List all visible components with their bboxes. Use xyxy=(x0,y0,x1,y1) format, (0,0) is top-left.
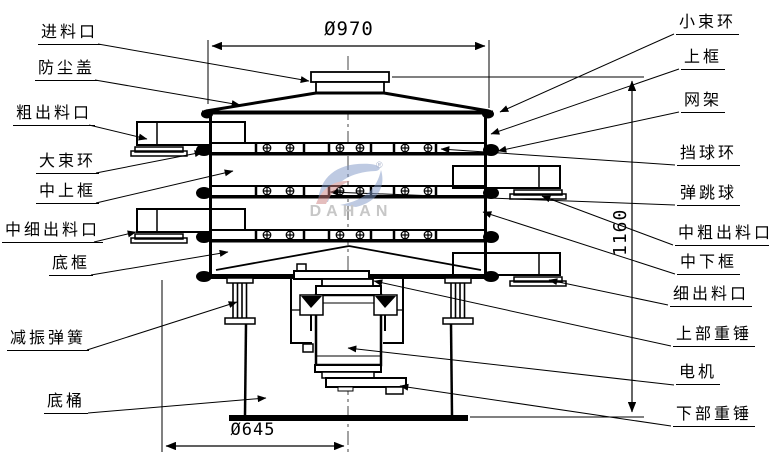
label-middle-lower-frame: 中下框 xyxy=(677,253,740,275)
label-bottom-barrel: 底桶 xyxy=(44,392,88,414)
small-clamp-ring-left xyxy=(201,110,213,119)
damping-spring-left xyxy=(225,278,255,324)
label-upper-frame: 上框 xyxy=(681,48,725,70)
sieve-machine-drawing xyxy=(0,0,769,454)
label-motor: 电机 xyxy=(676,363,720,385)
sieve-deck-3 xyxy=(211,230,485,241)
dimension-top-diameter: Ø970 xyxy=(318,18,380,40)
label-large-clamp-ring: 大束环 xyxy=(36,152,99,174)
technical-drawing-page: ® DAHAN Ø970 1160 Ø645 进料口 防尘盖 粗出料口 大束环 … xyxy=(0,0,769,454)
damping-spring-right xyxy=(443,278,473,324)
sieve-deck-1 xyxy=(211,143,485,154)
label-fine-outlet: 细出料口 xyxy=(670,285,752,307)
label-coarse-outlet: 粗出料口 xyxy=(13,104,95,126)
label-bouncing-ball: 弹跳球 xyxy=(677,184,740,206)
label-middle-upper-frame: 中上框 xyxy=(36,182,99,204)
label-upper-weight: 上部重锤 xyxy=(673,325,755,347)
motor-assembly xyxy=(291,264,406,394)
label-dust-cover: 防尘盖 xyxy=(35,59,98,81)
label-small-clamp-ring: 小束环 xyxy=(676,13,739,35)
label-damping-spring: 减振弹簧 xyxy=(7,329,89,351)
dimension-base-diameter: Ø645 xyxy=(226,420,280,440)
label-ball-stop-ring: 挡球环 xyxy=(677,144,740,166)
label-medium-coarse-outlet: 中粗出料口 xyxy=(675,224,769,246)
motor-body xyxy=(316,295,381,365)
sieve-deck-2 xyxy=(211,186,485,197)
upper-weight-plate xyxy=(294,271,369,279)
label-lower-weight: 下部重锤 xyxy=(673,405,755,427)
label-mesh-frame: 网架 xyxy=(681,91,725,113)
label-bottom-frame: 底框 xyxy=(49,254,93,276)
small-clamp-ring-right xyxy=(482,110,494,119)
lower-weight-plate xyxy=(326,378,406,387)
label-feed-inlet: 进料口 xyxy=(38,23,101,45)
feed-inlet xyxy=(311,72,389,93)
dimension-total-height: 1160 xyxy=(610,210,630,256)
label-medium-fine-outlet: 中细出料口 xyxy=(2,221,103,243)
